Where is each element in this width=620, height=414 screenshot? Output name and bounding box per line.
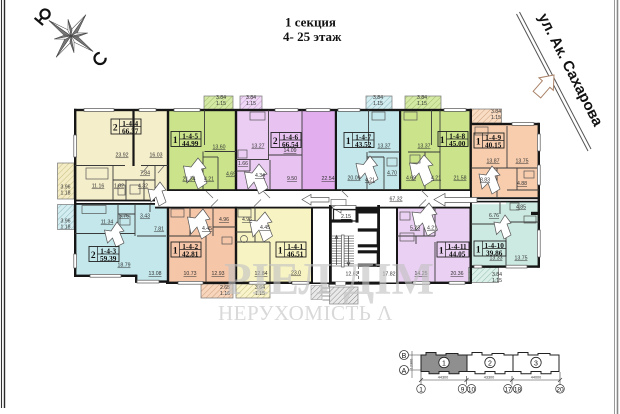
svg-text:1.15: 1.15 — [373, 101, 383, 107]
svg-text:18: 18 — [514, 386, 522, 393]
svg-text:НЕРУХОМІСТЬ Λ: НЕРУХОМІСТЬ Λ — [218, 301, 393, 325]
svg-text:10.73: 10.73 — [184, 271, 197, 277]
svg-text:1: 1 — [440, 136, 445, 146]
svg-text:20.36: 20.36 — [451, 271, 464, 277]
svg-text:59.39: 59.39 — [100, 254, 117, 263]
svg-text:2: 2 — [488, 360, 492, 367]
svg-text:1: 1 — [476, 246, 481, 256]
svg-text:1 секция: 1 секция — [285, 15, 336, 30]
svg-text:12.93: 12.93 — [212, 271, 225, 277]
svg-text:5.76: 5.76 — [119, 214, 129, 220]
svg-text:4- 25 этаж: 4- 25 этаж — [283, 29, 342, 44]
svg-text:2: 2 — [113, 124, 118, 134]
svg-text:13.37: 13.37 — [418, 144, 431, 150]
svg-text:13.75: 13.75 — [516, 159, 529, 165]
svg-text:1: 1 — [173, 136, 178, 146]
svg-text:11.34: 11.34 — [101, 220, 114, 226]
svg-text:РІЕЛ ДІМ: РІЕЛ ДІМ — [224, 254, 434, 304]
svg-text:4.45: 4.45 — [260, 225, 270, 231]
svg-text:21.58: 21.58 — [454, 176, 467, 182]
svg-text:40.15: 40.15 — [485, 141, 502, 150]
svg-text:43300: 43300 — [484, 376, 495, 380]
svg-text:13.37: 13.37 — [378, 144, 391, 150]
svg-text:44.99: 44.99 — [182, 139, 199, 148]
svg-text:43.52: 43.52 — [355, 140, 372, 149]
svg-text:4.21: 4.21 — [204, 177, 214, 183]
svg-text:16.03: 16.03 — [150, 153, 163, 159]
svg-text:9.50: 9.50 — [287, 176, 297, 182]
svg-text:5.23: 5.23 — [410, 226, 420, 232]
svg-text:4.21: 4.21 — [427, 226, 437, 232]
svg-text:44.05: 44.05 — [449, 250, 466, 259]
svg-text:12300: 12300 — [410, 359, 414, 370]
svg-text:1: 1 — [173, 247, 178, 257]
svg-text:45.00: 45.00 — [449, 139, 466, 148]
svg-text:11.16: 11.16 — [92, 184, 105, 190]
svg-text:4.34: 4.34 — [255, 173, 265, 179]
svg-text:18.79: 18.79 — [118, 263, 131, 269]
svg-text:1.82: 1.82 — [114, 184, 124, 190]
svg-text:4.45: 4.45 — [202, 226, 212, 232]
svg-text:4.88: 4.88 — [517, 181, 527, 187]
svg-text:2.15: 2.15 — [341, 214, 351, 220]
svg-text:1: 1 — [346, 137, 351, 147]
svg-text:4.32: 4.32 — [138, 184, 148, 190]
svg-text:20.09: 20.09 — [348, 176, 361, 182]
svg-text:3: 3 — [534, 360, 538, 367]
svg-text:1.18: 1.18 — [60, 191, 70, 197]
svg-text:1: 1 — [476, 138, 481, 148]
svg-text:7.84: 7.84 — [140, 171, 150, 177]
svg-text:4.21: 4.21 — [431, 176, 441, 182]
svg-text:13.75: 13.75 — [515, 256, 528, 262]
svg-text:42.81: 42.81 — [182, 250, 199, 259]
svg-text:6.76: 6.76 — [489, 213, 499, 219]
svg-text:4.96: 4.96 — [219, 217, 229, 223]
svg-text:21.34: 21.34 — [183, 177, 196, 183]
svg-text:13.87: 13.87 — [487, 159, 500, 165]
svg-text:9: 9 — [461, 386, 465, 393]
svg-text:1.15: 1.15 — [246, 101, 256, 107]
svg-text:23.92: 23.92 — [116, 153, 129, 159]
svg-text:3.43: 3.43 — [140, 214, 150, 220]
svg-text:2: 2 — [273, 137, 278, 147]
svg-text:4.21: 4.21 — [365, 178, 375, 184]
svg-text:13.33: 13.33 — [490, 256, 503, 262]
svg-text:1.15: 1.15 — [216, 101, 226, 107]
svg-text:4.70: 4.70 — [387, 171, 397, 177]
svg-text:17: 17 — [504, 386, 512, 393]
svg-text:2: 2 — [91, 251, 96, 261]
svg-text:В: В — [402, 353, 407, 360]
svg-text:13.60: 13.60 — [213, 145, 226, 151]
svg-text:1.15: 1.15 — [491, 115, 501, 121]
svg-text:1.15: 1.15 — [417, 101, 427, 107]
svg-text:4.85: 4.85 — [516, 205, 526, 211]
svg-text:22.54: 22.54 — [322, 176, 335, 182]
svg-text:1: 1 — [439, 247, 444, 257]
svg-text:10: 10 — [468, 386, 476, 393]
svg-text:А: А — [402, 368, 407, 375]
svg-text:4.69: 4.69 — [226, 172, 236, 178]
svg-text:66.37: 66.37 — [122, 127, 139, 136]
svg-text:1.18: 1.18 — [60, 225, 70, 231]
svg-text:13.27: 13.27 — [252, 144, 265, 150]
svg-text:44000: 44000 — [531, 376, 542, 380]
svg-text:20: 20 — [556, 386, 564, 393]
svg-text:14.09: 14.09 — [284, 148, 297, 154]
svg-text:67.32: 67.32 — [390, 197, 403, 203]
svg-text:1: 1 — [442, 360, 446, 367]
svg-text:44300: 44300 — [438, 376, 449, 380]
svg-text:4.96: 4.96 — [242, 217, 252, 223]
svg-text:13.08: 13.08 — [149, 271, 162, 277]
svg-text:1: 1 — [419, 386, 423, 393]
svg-text:1.15: 1.15 — [492, 278, 502, 284]
svg-text:1.66: 1.66 — [238, 161, 248, 167]
svg-text:8.83: 8.83 — [480, 178, 490, 184]
svg-text:4.69: 4.69 — [406, 176, 416, 182]
svg-text:7.81: 7.81 — [154, 227, 164, 233]
